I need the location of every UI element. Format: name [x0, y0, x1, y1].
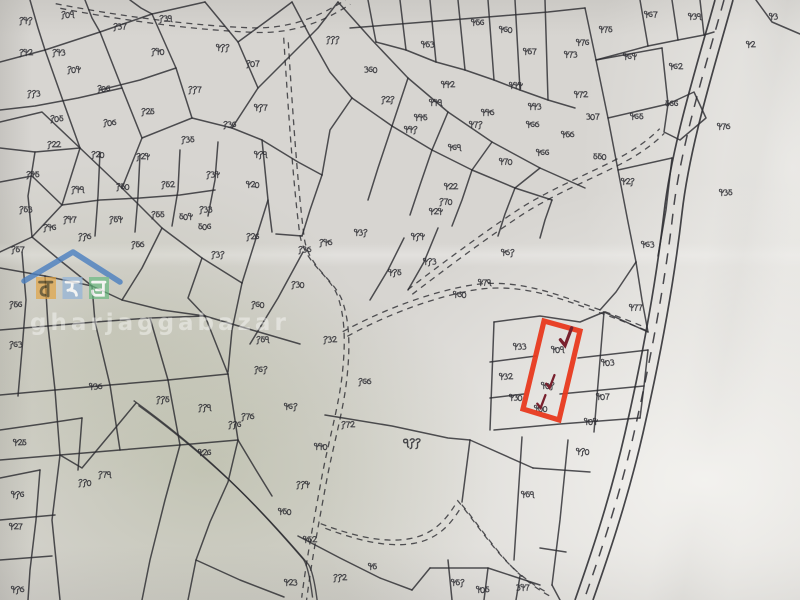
- parcel-number: [499, 373, 512, 380]
- parcel-boundary-line: [600, 262, 636, 310]
- parcel-number: [574, 91, 587, 98]
- parcel-boundary-line: [110, 385, 120, 450]
- parcel-boundaries: [0, 0, 800, 600]
- parcel-boundary-line: [484, 568, 488, 600]
- parcel-boundary-line: [470, 440, 533, 468]
- parcel-number: [499, 158, 512, 165]
- parcel-number: [481, 109, 494, 116]
- parcel-number: [471, 19, 483, 26]
- parcel-boundary-line: [368, 0, 376, 42]
- trail-dashed-line: [60, 4, 350, 32]
- parcel-number: [189, 86, 201, 94]
- watermark-site-text: gharjaggabazar: [30, 310, 290, 336]
- parcel-number: [499, 26, 512, 33]
- parcel-boundary-line: [490, 322, 494, 430]
- parcel-boundary-line: [596, 32, 714, 60]
- parcel-boundary-line: [410, 150, 432, 215]
- parcel-number: [284, 403, 297, 411]
- parcel-number: [79, 479, 91, 487]
- parcel-boundary-line: [585, 8, 636, 262]
- parcel-numbers: [9, 11, 777, 594]
- parcel-number: [334, 574, 347, 582]
- parcel-number: [421, 41, 434, 48]
- parcel-boundary-line: [276, 234, 302, 236]
- parcel-number: [414, 114, 427, 121]
- main-road: [575, 0, 733, 600]
- highlight-overlay: [523, 321, 580, 420]
- parcel-number: [429, 208, 442, 215]
- parcel-boundary-line: [0, 470, 40, 478]
- parcel-number: [13, 439, 26, 446]
- parcel-number: [327, 36, 339, 44]
- parcel-boundary-line: [0, 515, 55, 520]
- parcel-boundary-line: [498, 188, 515, 236]
- parcel-boundary-line: [78, 418, 82, 470]
- footpath-trails: [56, 0, 665, 600]
- parcel-boundary-line: [664, 92, 706, 140]
- parcel-boundary-line: [232, 128, 322, 175]
- trail-dashed-line: [408, 129, 660, 290]
- parcel-boundary-line: [462, 440, 470, 502]
- parcel-boundary-line: [292, 2, 352, 98]
- parcel-number: [688, 13, 701, 20]
- parcel-boundary-line: [662, 48, 668, 104]
- parcel-boundary-line: [350, 8, 585, 28]
- parcel-number: [132, 241, 144, 249]
- parcel-number: [68, 66, 81, 74]
- parcel-number: [162, 181, 175, 189]
- parcel-number: [629, 304, 642, 311]
- parcel-number: [440, 198, 452, 206]
- watermark-logo: gharjaggabazar: [24, 252, 290, 336]
- parcel-boundary-line: [540, 200, 552, 238]
- parcel-boundary-line: [0, 112, 80, 148]
- parcel-number: [601, 359, 614, 366]
- parcel-number: [536, 149, 548, 156]
- parcel-number: [509, 394, 522, 401]
- parcel-number: [11, 491, 23, 499]
- checkmark-icon: [559, 328, 573, 346]
- parcel-number: [478, 279, 491, 286]
- parcel-number: [576, 39, 588, 46]
- parcel-number: [137, 153, 150, 161]
- parcel-number: [411, 233, 424, 241]
- parcel-boundary-line: [32, 237, 205, 316]
- parcel-boundary-line: [228, 374, 238, 440]
- parcel-number: [564, 51, 577, 58]
- parcel-number: [359, 378, 371, 386]
- parcel-boundary-line: [238, 2, 292, 42]
- parcel-number: [152, 48, 164, 56]
- parcel-boundary-line: [18, 252, 26, 396]
- parcel-number: [641, 241, 654, 248]
- parcel-boundary-line: [142, 445, 180, 600]
- parcel-boundary-line: [28, 152, 35, 237]
- parcel-number: [254, 151, 267, 159]
- parcel-number: [448, 144, 461, 151]
- parcel-number: [180, 213, 193, 220]
- parcel-number: [599, 26, 612, 33]
- parcel-number: [255, 366, 267, 374]
- parcel-boundary-line: [172, 150, 180, 226]
- parcel-number: [444, 183, 457, 190]
- parcel-boundary-line: [618, 158, 672, 170]
- parcel-number: [216, 44, 229, 52]
- parcel-number: [199, 224, 211, 230]
- parcel-number: [354, 229, 367, 237]
- parcel-boundary-line: [432, 112, 448, 150]
- parcel-number: [10, 341, 22, 349]
- parcel-number: [451, 579, 464, 587]
- parcel-boundary-line: [515, 0, 520, 90]
- parcel-number: [99, 471, 111, 479]
- parcel-number: [476, 586, 489, 593]
- trail-dashed-line: [288, 42, 349, 600]
- parcel-boundary-line: [196, 560, 284, 597]
- parcel-boundary-line: [242, 200, 268, 283]
- parcel-boundary-line: [370, 238, 404, 300]
- parcel-boundary-line: [452, 170, 472, 226]
- parcel-boundary-line: [122, 188, 242, 283]
- parcel-number: [142, 108, 154, 116]
- parcel-boundary-line: [188, 258, 205, 316]
- parcel-boundary-line: [52, 455, 60, 600]
- parcel-boundary-line: [28, 470, 40, 600]
- trail-dashed-line: [321, 501, 548, 593]
- parcel-boundary-line: [135, 155, 140, 232]
- parcel-number: [252, 301, 264, 309]
- parcel-number: [404, 439, 420, 449]
- parcel-boundary-line: [594, 312, 604, 432]
- parcel-number: [92, 151, 104, 159]
- parcel-number: [297, 481, 310, 489]
- parcel-boundary-line: [0, 418, 82, 430]
- parcel-boundary-line: [458, 0, 465, 70]
- parcel-boundary-line: [488, 0, 494, 80]
- parcel-number: [404, 126, 417, 134]
- parcel-number: [242, 413, 254, 421]
- parcel-number: [104, 119, 116, 127]
- parcel-number: [324, 336, 337, 344]
- parcel-number: [630, 113, 643, 120]
- map-canvas: gharjaggabazar: [0, 0, 800, 600]
- parcel-number: [523, 48, 536, 55]
- parcel-boundary-line: [545, 0, 548, 100]
- parcel-boundary-line: [540, 548, 566, 552]
- parcel-boundary-line: [472, 142, 492, 170]
- parcel-boundary-line: [368, 126, 392, 200]
- parcel-number: [365, 67, 377, 73]
- road-edge-line: [575, 0, 715, 600]
- parcel-number: [528, 103, 541, 110]
- parcel-boundary-line: [302, 175, 322, 236]
- parcel-number: [152, 211, 164, 219]
- parcel-boundary-line: [208, 142, 218, 216]
- parcel-number: [53, 49, 65, 57]
- parcel-boundary-line: [60, 403, 136, 468]
- parcel-boundary-line: [122, 228, 162, 300]
- parcel-boundary-line: [578, 350, 648, 358]
- parcel-number: [342, 421, 355, 429]
- parcel-boundary-line: [672, 0, 678, 40]
- parcel-number: [320, 239, 332, 247]
- parcel-number: [199, 404, 211, 412]
- parcel-number: [28, 90, 40, 98]
- parcel-boundary-line: [85, 0, 100, 32]
- parcel-number: [469, 121, 482, 129]
- parcel-boundary-line: [400, 0, 406, 50]
- parcel-number: [207, 171, 220, 179]
- parcel-boundary-line: [130, 0, 152, 14]
- parcel-number: [746, 41, 755, 48]
- checkmark-icon: [545, 375, 555, 388]
- parcel-number: [10, 301, 22, 309]
- canal-line: [138, 405, 317, 600]
- parcel-boundary-line: [80, 32, 142, 188]
- parcel-number: [623, 53, 636, 60]
- parcel-number: [576, 448, 589, 456]
- parcel-boundary-line: [0, 374, 228, 395]
- parcel-number: [441, 81, 454, 88]
- parcel-number: [423, 258, 436, 266]
- parcel-boundary-line: [494, 418, 640, 430]
- parcel-number: [198, 449, 210, 456]
- parcel-number: [27, 171, 39, 179]
- parcel-number: [64, 216, 76, 224]
- parcel-number: [526, 121, 539, 128]
- parcel-number: [257, 336, 269, 344]
- canal-line: [134, 401, 313, 598]
- parcel-number: [44, 224, 56, 232]
- highlight-rectangle: [523, 321, 580, 420]
- parcel-number: [596, 393, 609, 400]
- parcel-boundary-line: [142, 14, 192, 138]
- parcel-number: [644, 11, 657, 18]
- parcel-boundary-line: [640, 0, 648, 46]
- parcel-number: [382, 96, 394, 104]
- parcel-number: [9, 523, 22, 530]
- parcel-boundary-line: [0, 148, 80, 152]
- parcel-boundary-line: [533, 468, 590, 472]
- parcel-number: [621, 178, 634, 186]
- parcel-number: [509, 82, 522, 89]
- parcel-number: [551, 346, 564, 353]
- parcel-number: [292, 281, 304, 289]
- parcel-boundary-line: [392, 78, 408, 126]
- parcel-boundary-line: [756, 0, 800, 34]
- parcel-number: [314, 443, 327, 450]
- parcel-number: [182, 136, 194, 144]
- parcel-boundary-line: [30, 0, 45, 50]
- parcel-number: [254, 104, 267, 112]
- parcel-number: [72, 186, 84, 194]
- parcel-number: [587, 114, 600, 120]
- parcel-boundary-line: [560, 386, 644, 394]
- parcel-number: [368, 563, 376, 570]
- canal-lines: [134, 401, 318, 600]
- parcel-number: [278, 508, 291, 515]
- parcel-number: [246, 181, 259, 188]
- parcel-boundary-line: [238, 440, 272, 496]
- parcel-number: [717, 123, 730, 130]
- parcel-number: [157, 396, 169, 404]
- parcel-boundary-line: [0, 556, 52, 560]
- parcel-number: [453, 291, 466, 298]
- parcel-number: [212, 251, 224, 259]
- parcel-boundary-line: [515, 168, 540, 188]
- parcel-number: [517, 584, 530, 591]
- scanned-cadastral-map: gharjaggabazar: [0, 0, 800, 600]
- parcel-boundary-line: [636, 262, 648, 332]
- parcel-boundary-line: [100, 68, 176, 90]
- parcel-number: [11, 586, 24, 594]
- parcel-number: [12, 246, 24, 254]
- parcel-boundary-line: [552, 585, 560, 600]
- parcel-number: [594, 154, 606, 160]
- parcel-boundary-line: [412, 568, 430, 590]
- parcel-boundary-line: [514, 437, 522, 560]
- parcel-boundary-line: [552, 440, 568, 585]
- parcel-number: [501, 249, 514, 257]
- parcel-number: [79, 233, 91, 241]
- trail-dashed-line: [56, 0, 346, 28]
- parcel-number: [48, 141, 61, 149]
- parcel-number: [62, 11, 74, 19]
- parcel-number: [20, 17, 32, 25]
- parcel-number: [561, 131, 574, 138]
- parcel-number: [284, 579, 297, 586]
- parcel-boundary-line: [490, 356, 536, 362]
- parcel-number: [110, 216, 123, 224]
- parcel-number: [521, 491, 534, 498]
- parcel-number: [719, 189, 732, 196]
- parcel-boundary-line: [430, 0, 436, 62]
- parcel-boundary-line: [322, 98, 352, 175]
- parcel-boundary-line: [325, 415, 470, 440]
- parcel-number: [388, 269, 401, 277]
- parcel-number: [513, 343, 526, 350]
- parcel-number: [669, 63, 682, 70]
